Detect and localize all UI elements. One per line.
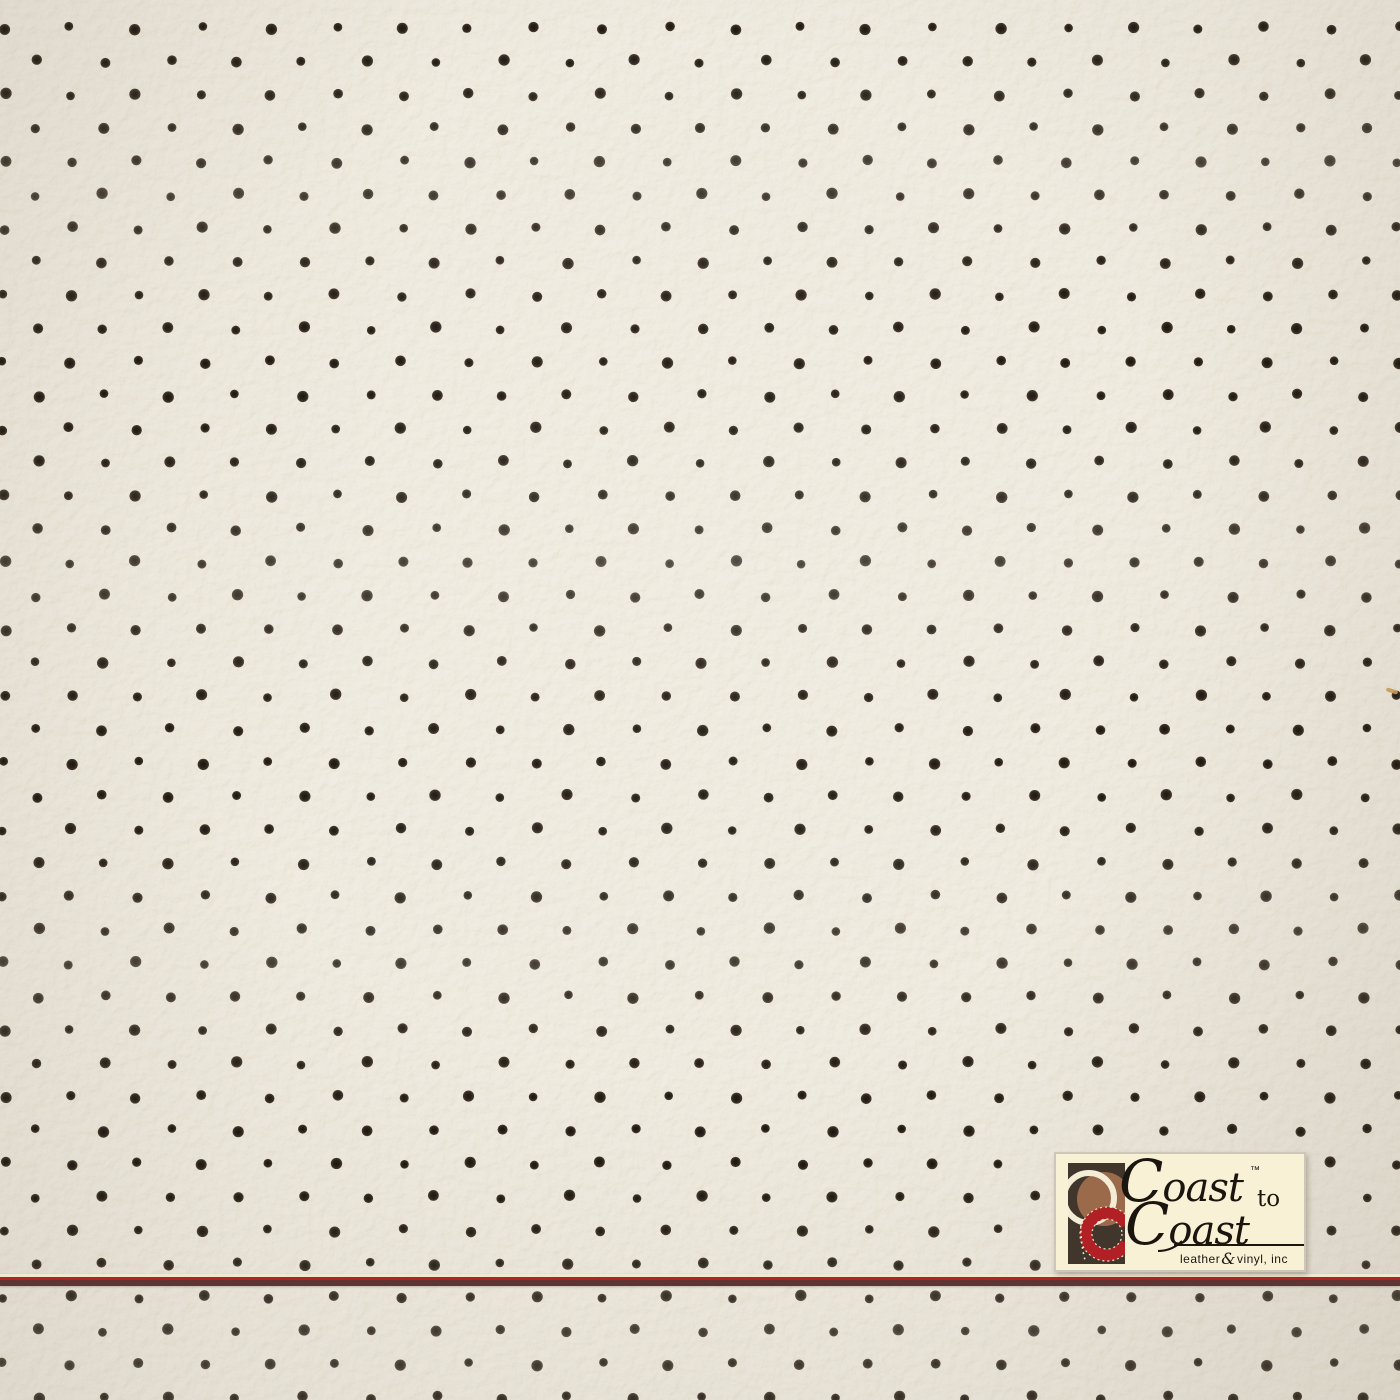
perforation-dot bbox=[498, 1125, 508, 1135]
perforation-dot bbox=[362, 525, 373, 536]
perforation-dot bbox=[100, 58, 110, 68]
perforation-dot bbox=[1128, 22, 1139, 33]
perforation-dot bbox=[862, 624, 873, 635]
perforation-dot bbox=[1063, 425, 1072, 434]
perforation-dot bbox=[1293, 927, 1302, 936]
perforation-dot bbox=[135, 757, 144, 766]
perforation-dot bbox=[532, 759, 542, 769]
tagline-right: vinyl, inc bbox=[1237, 1252, 1288, 1266]
perforation-dot bbox=[495, 1259, 504, 1268]
perforation-dot bbox=[961, 992, 971, 1002]
perforation-dot bbox=[400, 693, 409, 702]
perforation-dot bbox=[865, 292, 874, 301]
perforation-dot bbox=[331, 425, 340, 434]
perforation-dot bbox=[697, 1392, 706, 1400]
perforation-dot bbox=[1228, 1057, 1239, 1068]
perforation-dot bbox=[1059, 223, 1070, 234]
perforation-dot bbox=[1092, 591, 1103, 602]
perforation-dot bbox=[1228, 592, 1239, 603]
perforation-dot bbox=[265, 555, 276, 566]
perforation-dot bbox=[98, 123, 109, 134]
perforation-dot bbox=[66, 1290, 77, 1301]
perforation-dot bbox=[528, 92, 537, 101]
perforation-dot bbox=[864, 225, 873, 234]
perforation-dot bbox=[1030, 660, 1039, 669]
perforation-dot bbox=[829, 325, 839, 335]
perforation-dot bbox=[1262, 357, 1273, 368]
accent-line bbox=[0, 1274, 1400, 1286]
perforation-dot bbox=[827, 656, 838, 667]
perforation-dot bbox=[398, 758, 407, 767]
perforation-dot bbox=[433, 459, 443, 469]
perforation-dot bbox=[96, 725, 107, 736]
perforation-dot bbox=[729, 956, 739, 966]
perforation-dot bbox=[595, 88, 606, 99]
perforation-dot bbox=[65, 1025, 74, 1034]
perforation-dot bbox=[162, 1323, 173, 1334]
perforation-dot bbox=[1330, 1358, 1339, 1367]
perforation-dot bbox=[1294, 188, 1304, 198]
perforation-dot bbox=[1292, 389, 1302, 399]
perforation-dot bbox=[400, 1093, 409, 1102]
perforation-dot bbox=[696, 1190, 707, 1201]
perforation-dot bbox=[1094, 189, 1105, 200]
perforation-dot bbox=[1029, 122, 1038, 131]
perforation-dot bbox=[565, 1060, 574, 1069]
perforation-dot bbox=[1259, 959, 1270, 970]
perforation-dot bbox=[859, 1024, 870, 1035]
perforation-dot bbox=[698, 1258, 709, 1269]
perforation-dot bbox=[664, 623, 673, 632]
perforation-dot bbox=[630, 1324, 640, 1334]
perforation-dot bbox=[1027, 523, 1036, 532]
perforation-dot bbox=[761, 1059, 771, 1069]
perforation-dot bbox=[794, 358, 805, 369]
perforation-dot bbox=[927, 559, 936, 568]
perforation-dot bbox=[264, 824, 274, 834]
perforation-dot bbox=[265, 893, 276, 904]
perforation-dot bbox=[497, 1394, 508, 1400]
perforation-dot bbox=[1325, 1156, 1336, 1167]
perforation-dot bbox=[100, 1057, 111, 1068]
perforation-dot bbox=[762, 1193, 771, 1202]
perforation-dot bbox=[464, 1358, 473, 1367]
perforation-dot bbox=[67, 158, 76, 167]
perforation-dot bbox=[399, 91, 409, 101]
perforation-dot bbox=[665, 92, 674, 101]
perforation-dot bbox=[64, 891, 74, 901]
perforation-dot bbox=[632, 192, 641, 201]
perforation-dot bbox=[963, 124, 974, 135]
perforation-dot bbox=[1391, 759, 1400, 770]
perforation-dot bbox=[366, 1394, 376, 1400]
perforation-dot bbox=[993, 1160, 1002, 1169]
perforation-dot bbox=[396, 823, 406, 833]
perforation-dot bbox=[168, 123, 177, 132]
perforation-dot bbox=[96, 1191, 107, 1202]
logo-rule bbox=[1174, 1244, 1304, 1246]
perforation-dot bbox=[662, 357, 673, 368]
perforation-dot bbox=[432, 390, 443, 401]
perforation-dot bbox=[164, 456, 175, 467]
perforation-dot bbox=[831, 526, 841, 536]
perforation-dot bbox=[928, 1027, 937, 1036]
perforation-dot bbox=[1258, 491, 1269, 502]
perforation-dot bbox=[496, 190, 506, 200]
perforation-dot bbox=[1194, 1091, 1205, 1102]
perforation-dot bbox=[1229, 924, 1239, 934]
perforation-dot bbox=[163, 391, 174, 402]
perforation-dot bbox=[233, 1126, 244, 1137]
perforation-dot bbox=[832, 458, 841, 467]
perforation-dot bbox=[431, 1061, 440, 1070]
perforation-dot bbox=[826, 726, 837, 737]
perforation-dot bbox=[893, 859, 904, 870]
perforation-dot bbox=[661, 823, 672, 834]
perforation-dot bbox=[1194, 827, 1203, 836]
perforation-dot bbox=[0, 1227, 9, 1236]
perforation-dot bbox=[263, 757, 272, 766]
perforation-dot bbox=[498, 993, 509, 1004]
perforation-dot bbox=[561, 1327, 571, 1337]
perforation-dot bbox=[1328, 290, 1338, 300]
perforation-dot bbox=[695, 991, 704, 1000]
perforation-dot bbox=[698, 789, 709, 800]
perforation-dot bbox=[895, 1192, 904, 1201]
perforation-dot bbox=[265, 90, 276, 101]
perforation-dot bbox=[1161, 789, 1172, 800]
perforation-dot bbox=[1327, 25, 1337, 35]
perforation-dot bbox=[428, 723, 439, 734]
perforation-dot bbox=[1296, 525, 1305, 534]
perforation-dot bbox=[1097, 326, 1106, 335]
perforation-dot bbox=[33, 1323, 44, 1334]
perforation-dot bbox=[496, 857, 506, 867]
perforation-dot bbox=[1327, 1226, 1337, 1236]
perforation-dot bbox=[299, 192, 308, 201]
perforation-dot bbox=[598, 957, 608, 967]
perforation-dot bbox=[1229, 993, 1240, 1004]
perforation-dot bbox=[630, 592, 640, 602]
perforation-dot bbox=[728, 1295, 737, 1304]
perforation-dot bbox=[66, 92, 75, 101]
perforation-dot bbox=[168, 1060, 177, 1069]
perforation-dot bbox=[1130, 91, 1140, 101]
perforation-dot bbox=[1392, 290, 1400, 301]
perforation-dot bbox=[264, 292, 273, 301]
perforation-dot bbox=[0, 757, 8, 766]
perforation-dot bbox=[131, 155, 141, 165]
perforation-dot bbox=[1127, 492, 1138, 503]
perforation-dot bbox=[895, 923, 906, 934]
perforation-dot bbox=[232, 791, 241, 800]
perforation-dot bbox=[662, 691, 672, 701]
perforation-dot bbox=[34, 1393, 45, 1400]
perforation-dot bbox=[1193, 1027, 1203, 1037]
perforation-dot bbox=[230, 991, 240, 1001]
perforation-dot bbox=[661, 1290, 672, 1301]
perforation-dot bbox=[363, 189, 373, 199]
perforation-dot bbox=[1392, 1290, 1400, 1301]
perforation-dot bbox=[263, 693, 272, 702]
perforation-dot bbox=[97, 790, 107, 800]
perforation-dot bbox=[64, 22, 73, 31]
perforation-dot bbox=[566, 122, 575, 131]
perforation-dot bbox=[632, 256, 641, 265]
perforation-dot bbox=[297, 1061, 306, 1070]
perforation-dot bbox=[363, 992, 374, 1003]
perforation-dot bbox=[531, 1224, 541, 1234]
perforation-dot bbox=[496, 1325, 505, 1334]
perforation-dot bbox=[0, 1025, 11, 1036]
perforation-dot bbox=[200, 824, 211, 835]
perforation-dot bbox=[1362, 256, 1371, 265]
perforation-dot bbox=[432, 58, 441, 67]
perforation-dot bbox=[1030, 723, 1040, 733]
perforation-dot bbox=[893, 791, 904, 802]
perforation-dot bbox=[865, 757, 874, 766]
perforation-dot bbox=[1064, 958, 1073, 967]
perforation-dot bbox=[661, 1225, 672, 1236]
perforation-dot bbox=[361, 124, 372, 135]
perforation-dot bbox=[197, 222, 208, 233]
perforation-dot bbox=[1092, 525, 1103, 536]
perforation-dot bbox=[1391, 222, 1400, 231]
perforation-dot bbox=[562, 1391, 571, 1400]
perforation-dot bbox=[1359, 858, 1369, 868]
perforation-dot bbox=[531, 1360, 542, 1371]
perforation-dot bbox=[0, 1358, 6, 1367]
perforation-dot bbox=[594, 1156, 605, 1167]
perforation-dot bbox=[829, 589, 840, 600]
perforation-dot bbox=[329, 1227, 340, 1238]
perforation-dot bbox=[1027, 390, 1038, 401]
perforation-dot bbox=[897, 122, 906, 131]
perforation-dot bbox=[1296, 590, 1305, 599]
perforation-dot bbox=[994, 1224, 1003, 1233]
perforation-dot bbox=[0, 290, 7, 299]
brand-connector: to bbox=[1257, 1186, 1280, 1212]
perforation-dot bbox=[130, 625, 140, 635]
perforation-dot bbox=[364, 1194, 374, 1204]
perforation-dot bbox=[898, 1060, 907, 1069]
perforation-dot bbox=[860, 956, 871, 967]
perforation-dot bbox=[463, 1091, 474, 1102]
perforation-dot bbox=[1162, 524, 1171, 533]
perforation-dot bbox=[666, 1025, 675, 1034]
perforation-dot bbox=[798, 690, 808, 700]
perforation-dot bbox=[31, 192, 40, 201]
perforation-dot bbox=[764, 793, 774, 803]
perforation-dot bbox=[168, 593, 177, 602]
perforation-dot bbox=[1062, 625, 1073, 636]
perforation-dot bbox=[960, 1394, 969, 1400]
perforation-dot bbox=[333, 89, 343, 99]
perforation-dot bbox=[1130, 693, 1139, 702]
perforation-dot bbox=[829, 1328, 838, 1337]
perforation-dot bbox=[1226, 794, 1235, 803]
perforation-dot bbox=[865, 1225, 874, 1234]
perforation-dot bbox=[365, 726, 374, 735]
perforation-dot bbox=[1028, 1061, 1037, 1070]
perforation-dot bbox=[264, 1159, 273, 1168]
perforation-dot bbox=[196, 624, 206, 634]
perforation-dot bbox=[564, 189, 575, 200]
perforation-dot bbox=[731, 1093, 742, 1104]
perforation-dot bbox=[31, 724, 40, 733]
perforation-dot bbox=[230, 927, 239, 936]
perforation-dot bbox=[64, 960, 73, 969]
perforation-dot bbox=[362, 656, 373, 667]
perforation-dot bbox=[1330, 893, 1339, 902]
perforation-dot bbox=[0, 892, 7, 901]
perforation-dot bbox=[198, 759, 209, 770]
perforation-dot bbox=[0, 827, 6, 836]
perforation-dot bbox=[1027, 1390, 1038, 1400]
perforation-dot bbox=[231, 57, 242, 68]
perforation-dot bbox=[1196, 224, 1207, 235]
perforation-dot bbox=[332, 959, 341, 968]
perforation-dot bbox=[532, 356, 543, 367]
perforation-dot bbox=[400, 156, 409, 165]
logo-mark-icon bbox=[1068, 1163, 1125, 1264]
perforation-dot bbox=[63, 422, 73, 432]
perforation-dot bbox=[863, 1359, 873, 1369]
perforation-dot bbox=[764, 1324, 775, 1335]
perforation-dot bbox=[1093, 655, 1104, 666]
perforation-dot bbox=[596, 556, 607, 567]
perforation-dot bbox=[0, 956, 8, 967]
perforation-dot bbox=[1129, 557, 1139, 567]
perforation-dot bbox=[1163, 389, 1174, 400]
perforation-dot bbox=[329, 758, 340, 769]
perforation-dot bbox=[367, 1326, 376, 1335]
perforation-dot bbox=[628, 392, 638, 402]
perforation-dot bbox=[0, 24, 10, 35]
perforation-dot bbox=[893, 1324, 904, 1335]
perforation-dot bbox=[134, 356, 143, 365]
perforation-dot bbox=[930, 960, 939, 969]
perforation-dot bbox=[1292, 858, 1302, 868]
perforation-dot bbox=[730, 692, 740, 702]
perforation-dot bbox=[330, 689, 341, 700]
perforation-dot bbox=[32, 256, 41, 265]
perforation-dot bbox=[561, 322, 572, 333]
perforation-dot bbox=[798, 158, 807, 167]
perforation-dot bbox=[163, 792, 174, 803]
perforation-dot bbox=[230, 1394, 239, 1400]
perforation-dot bbox=[96, 258, 107, 269]
perforation-dot bbox=[101, 991, 111, 1001]
perforation-dot bbox=[99, 589, 110, 600]
perforation-dot bbox=[1130, 156, 1139, 165]
perforation-dot bbox=[1391, 1226, 1400, 1236]
perforation-dot bbox=[296, 458, 306, 468]
perforation-dot bbox=[1163, 925, 1173, 935]
perforation-dot bbox=[329, 826, 339, 836]
perforation-dot bbox=[129, 1024, 140, 1035]
perforation-dot bbox=[31, 1124, 40, 1133]
perforation-dot bbox=[97, 1258, 107, 1268]
perforation-dot bbox=[1327, 491, 1337, 501]
perforation-dot bbox=[0, 426, 7, 436]
perforation-dot bbox=[695, 123, 705, 133]
perforation-dot bbox=[31, 593, 40, 602]
perforation-dot bbox=[466, 757, 476, 767]
perforation-dot bbox=[1162, 990, 1171, 999]
perforation-dot bbox=[1, 625, 12, 636]
perforation-dot bbox=[396, 1293, 406, 1303]
perforation-dot bbox=[1326, 1025, 1337, 1036]
perforation-dot bbox=[361, 590, 372, 601]
perforation-dot bbox=[200, 960, 209, 969]
perforation-dot bbox=[566, 59, 575, 68]
perforation-dot bbox=[129, 555, 140, 566]
perforation-dot bbox=[297, 391, 308, 402]
perforation-dot bbox=[628, 523, 639, 534]
perforation-dot bbox=[997, 423, 1008, 434]
perforation-dot bbox=[1126, 823, 1136, 833]
perforation-dot bbox=[529, 1024, 538, 1033]
perforation-dot bbox=[698, 859, 707, 868]
perforation-dot bbox=[429, 258, 440, 269]
perforation-dot bbox=[730, 490, 741, 501]
perforation-dot bbox=[32, 793, 42, 803]
perforation-dot bbox=[0, 88, 11, 99]
perforation-dot bbox=[498, 1057, 509, 1068]
perforation-dot bbox=[931, 890, 941, 900]
perforation-dot bbox=[1329, 426, 1338, 435]
perforation-dot bbox=[761, 658, 770, 667]
perforation-dot bbox=[561, 859, 571, 869]
perforation-dot bbox=[661, 222, 671, 232]
perforation-dot bbox=[298, 122, 307, 131]
perforation-dot bbox=[231, 326, 240, 335]
perforation-dot bbox=[297, 1391, 308, 1400]
perforation-dot bbox=[265, 1359, 276, 1370]
perforation-dot bbox=[662, 1161, 671, 1170]
perforation-dot bbox=[1129, 223, 1138, 232]
perforation-dot bbox=[860, 89, 871, 100]
perforation-dot bbox=[696, 188, 707, 199]
perforation-dot bbox=[893, 1260, 903, 1270]
perforation-dot bbox=[929, 490, 938, 499]
perforation-dot bbox=[1394, 1359, 1400, 1370]
perforation-dot bbox=[694, 1058, 704, 1068]
perforation-dot bbox=[100, 389, 109, 398]
perforation-dot bbox=[495, 793, 504, 802]
perforation-dot bbox=[1125, 356, 1135, 366]
perforation-dot bbox=[594, 156, 605, 167]
perforation-dot bbox=[794, 824, 805, 835]
perforation-dot bbox=[1395, 490, 1400, 500]
perforation-dot bbox=[1394, 890, 1400, 901]
perforation-dot bbox=[995, 1023, 1006, 1034]
perforation-dot bbox=[134, 225, 143, 234]
perforation-dot bbox=[633, 1194, 642, 1203]
perforation-dot bbox=[98, 1328, 107, 1337]
perforation-dot bbox=[993, 155, 1003, 165]
perforation-dot bbox=[1394, 91, 1400, 100]
ampersand: & bbox=[1221, 1249, 1236, 1268]
perforation-dot bbox=[1093, 993, 1104, 1004]
perforation-dot bbox=[627, 455, 638, 466]
perforation-dot bbox=[927, 1090, 937, 1100]
perforation-dot bbox=[795, 289, 806, 300]
perforation-dot bbox=[333, 490, 342, 499]
perforation-dot bbox=[33, 455, 44, 466]
perforation-dot bbox=[31, 657, 40, 666]
